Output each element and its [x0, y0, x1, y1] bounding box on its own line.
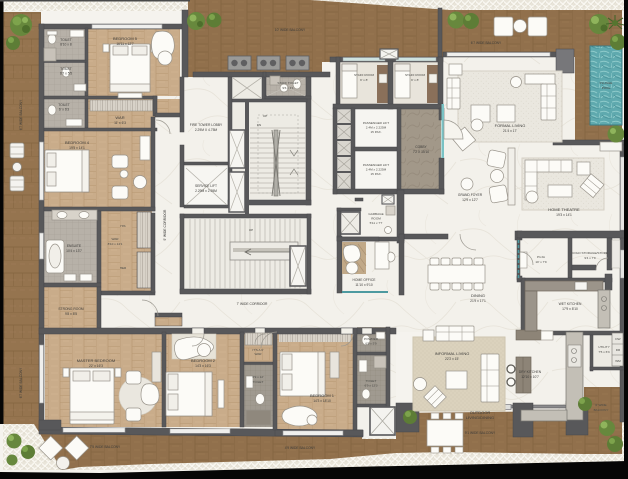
- svg-text:SERVICE LIFT: SERVICE LIFT: [195, 184, 217, 188]
- svg-text:15 PAX.: 15 PAX.: [370, 172, 381, 176]
- svg-text:22' x 16'3: 22' x 16'3: [89, 364, 103, 368]
- svg-text:9'6 x 4'1: 9'6 x 4'1: [282, 86, 294, 90]
- svg-text:19'3 x 14'1: 19'3 x 14'1: [556, 213, 572, 217]
- svg-text:6'9 x 5'9: 6'9 x 5'9: [365, 342, 377, 346]
- svg-text:6'7 WIDE BALCONY: 6'7 WIDE BALCONY: [19, 99, 23, 130]
- svg-text:GRAND FOYER: GRAND FOYER: [458, 193, 483, 197]
- svg-text:7' WIDE CORRIDOR: 7' WIDE CORRIDOR: [237, 302, 268, 306]
- svg-text:POOL: POOL: [602, 86, 611, 90]
- svg-text:FIRE TOWER LOBBY: FIRE TOWER LOBBY: [190, 123, 223, 127]
- svg-text:PASSENGER LIFT: PASSENGER LIFT: [363, 121, 389, 125]
- svg-text:BEDROOM 4: BEDROOM 4: [65, 140, 90, 145]
- svg-text:9' WIDE CORRIDOR: 9' WIDE CORRIDOR: [163, 209, 167, 240]
- svg-text:PASSENGER LIFT: PASSENGER LIFT: [363, 163, 389, 167]
- svg-text:ENSUITE: ENSUITE: [67, 244, 82, 248]
- svg-text:BEDROOM 1: BEDROOM 1: [310, 393, 335, 398]
- svg-text:14'3 x 18'10: 14'3 x 18'10: [313, 399, 331, 403]
- svg-text:2.4M x 2.225M: 2.4M x 2.225M: [366, 168, 387, 172]
- svg-text:TOILET: TOILET: [60, 67, 71, 71]
- svg-text:POWDER: POWDER: [364, 337, 379, 341]
- svg-text:9' x 8': 9' x 8': [411, 78, 419, 82]
- svg-text:6'9 x 12'3: 6'9 x 12'3: [364, 384, 377, 388]
- svg-text:UTILITY: UTILITY: [598, 345, 610, 349]
- svg-text:PUJA: PUJA: [537, 255, 546, 259]
- svg-text:9'1 WIDE BALCONY: 9'1 WIDE BALCONY: [465, 431, 496, 435]
- svg-text:10' x 7'9: 10' x 7'9: [535, 260, 547, 264]
- svg-text:HOME THEATRE: HOME THEATRE: [548, 207, 580, 212]
- svg-text:UP: UP: [249, 228, 253, 232]
- svg-text:TOILET: TOILET: [58, 103, 69, 107]
- svg-text:LIVING/DINING: LIVING/DINING: [466, 415, 494, 420]
- svg-text:10' WIDE BALCONY: 10' WIDE BALCONY: [275, 28, 306, 32]
- svg-text:HIS: HIS: [120, 224, 125, 228]
- svg-text:WAR: WAR: [111, 237, 119, 241]
- svg-text:4'9 WIDE BALCONY: 4'9 WIDE BALCONY: [285, 446, 316, 450]
- svg-text:11' x 6'3: 11' x 6'3: [114, 121, 126, 125]
- svg-text:TOILET: TOILET: [366, 379, 377, 383]
- svg-text:6' x 6'3: 6' x 6'3: [59, 108, 69, 112]
- svg-text:COBBY: COBBY: [415, 145, 427, 149]
- svg-text:BEDROOM 5: BEDROOM 5: [113, 36, 138, 41]
- svg-text:21'4 x 17': 21'4 x 17': [503, 129, 517, 133]
- svg-text:8'10 x 14'1: 8'10 x 14'1: [108, 242, 123, 246]
- svg-text:6'9 x 12': 6'9 x 12': [252, 375, 264, 379]
- svg-text:6' WIDE: 6' WIDE: [595, 403, 606, 407]
- svg-text:11'10 x 9'10: 11'10 x 9'10: [355, 283, 372, 287]
- svg-text:8'10 x 8: 8'10 x 8: [60, 43, 72, 47]
- svg-text:WET KITCHEN: WET KITCHEN: [559, 302, 582, 306]
- svg-text:6'7 WIDE BALCONY: 6'7 WIDE BALCONY: [471, 41, 502, 45]
- svg-text:16'11 x 12'7: 16'11 x 12'7: [116, 42, 133, 46]
- svg-text:7'5 WIDE BALCONY: 7'5 WIDE BALCONY: [90, 445, 121, 449]
- svg-text:12'9 x 12'7: 12'9 x 12'7: [462, 198, 478, 202]
- svg-text:14'3 x 16'3: 14'3 x 16'3: [195, 364, 211, 368]
- svg-text:STAFF ROOM: STAFF ROOM: [405, 73, 425, 77]
- svg-text:HOME OFFICE: HOME OFFICE: [353, 278, 377, 282]
- svg-text:UP: UP: [263, 114, 267, 118]
- svg-text:DRY KITCHEN: DRY KITCHEN: [519, 370, 542, 374]
- svg-text:STAFF TOILET: STAFF TOILET: [277, 81, 298, 85]
- svg-text:10'4 x 13'7: 10'4 x 13'7: [66, 249, 82, 253]
- svg-text:15 PAX.: 15 PAX.: [370, 130, 381, 134]
- svg-text:DN: DN: [257, 123, 261, 127]
- svg-text:2.29M x 2.95M: 2.29M x 2.95M: [195, 189, 217, 193]
- svg-text:PLUNGE: PLUNGE: [600, 81, 613, 85]
- svg-text:6'7 x 5'5: 6'7 x 5'5: [60, 72, 72, 76]
- svg-text:2.29M X 4.75M: 2.29M X 4.75M: [195, 128, 218, 132]
- svg-text:9'4 x 7'9: 9'4 x 7'9: [584, 256, 596, 260]
- svg-text:WAR: WAR: [254, 352, 262, 356]
- svg-text:FORMAL LIVING: FORMAL LIVING: [495, 123, 526, 128]
- svg-text:WM: WM: [615, 359, 621, 363]
- svg-text:9'8 x 8'5: 9'8 x 8'5: [65, 312, 77, 316]
- svg-text:MASTER BEDROOM: MASTER BEDROOM: [77, 358, 115, 363]
- svg-text:GARBAGE: GARBAGE: [368, 212, 383, 216]
- svg-text:DINING: DINING: [471, 293, 485, 298]
- svg-text:17'9 x 8'10: 17'9 x 8'10: [562, 307, 578, 311]
- svg-text:7'5 x 6'3: 7'5 x 6'3: [598, 350, 610, 354]
- svg-text:BEDROOM 2: BEDROOM 2: [191, 358, 216, 363]
- svg-text:6'7 WIDE BALCONY: 6'7 WIDE BALCONY: [19, 367, 23, 398]
- svg-text:BALCONY: BALCONY: [594, 408, 609, 412]
- svg-text:TOILET: TOILET: [253, 380, 264, 384]
- svg-text:19'5 x 14'1: 19'5 x 14'1: [69, 146, 85, 150]
- svg-text:22'2 x 15': 22'2 x 15': [445, 357, 459, 361]
- svg-text:9' x 8': 9' x 8': [360, 78, 368, 82]
- svg-text:7'2 X 15'10: 7'2 X 15'10: [413, 150, 429, 154]
- svg-text:HER: HER: [120, 266, 127, 270]
- svg-text:INFORMAL LIVING: INFORMAL LIVING: [435, 351, 470, 356]
- svg-text:TOILET: TOILET: [60, 38, 71, 42]
- svg-text:2.4M x 2.225M: 2.4M x 2.225M: [366, 126, 387, 130]
- svg-text:COLD STORAGE/STORE: COLD STORAGE/STORE: [572, 251, 608, 255]
- svg-text:STRONG ROOM: STRONG ROOM: [58, 307, 84, 311]
- svg-text:ROOM: ROOM: [371, 217, 381, 221]
- svg-text:WAR: WAR: [115, 115, 124, 120]
- svg-text:DW: DW: [615, 337, 620, 341]
- svg-text:5'11 x 7'7: 5'11 x 7'7: [370, 221, 383, 225]
- svg-text:DR: DR: [616, 348, 621, 352]
- svg-text:21'9 x 17'1: 21'9 x 17'1: [470, 299, 486, 303]
- svg-text:STAFF ROOM: STAFF ROOM: [354, 73, 374, 77]
- svg-text:12'10 x 10'7: 12'10 x 10'7: [521, 375, 539, 379]
